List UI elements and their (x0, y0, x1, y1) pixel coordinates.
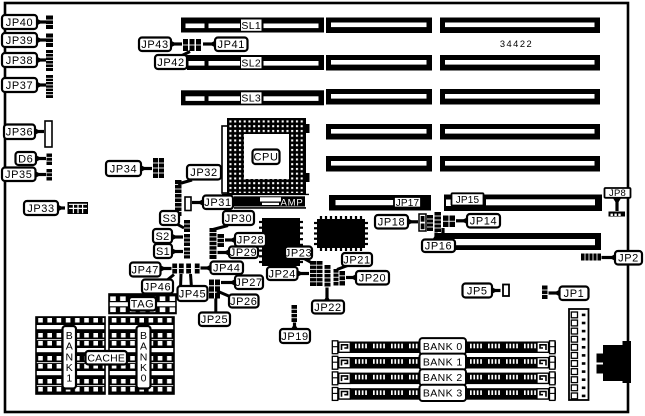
svg-text:JP8: JP8 (609, 188, 626, 199)
svg-text:JP44: JP44 (213, 263, 240, 275)
svg-text:JP26: JP26 (230, 296, 257, 308)
svg-text:SL2: SL2 (241, 57, 261, 69)
svg-text:JP14: JP14 (470, 216, 497, 228)
svg-text:JP19: JP19 (281, 331, 308, 343)
svg-text:S2: S2 (155, 231, 169, 243)
svg-text:TAG: TAG (131, 299, 155, 311)
svg-text:BANK 0: BANK 0 (423, 341, 463, 353)
svg-text:JP35: JP35 (5, 169, 32, 181)
svg-text:0: 0 (141, 373, 147, 385)
svg-text:JP36: JP36 (6, 127, 33, 139)
svg-text:JP31: JP31 (204, 197, 231, 209)
svg-text:BANK 3: BANK 3 (423, 388, 463, 400)
svg-text:CACHE: CACHE (87, 352, 125, 364)
svg-text:JP45: JP45 (179, 288, 206, 300)
svg-text:JP1: JP1 (564, 288, 585, 300)
svg-text:JP47: JP47 (132, 264, 159, 276)
svg-text:BANK 1: BANK 1 (423, 356, 463, 368)
svg-text:JP25: JP25 (201, 314, 228, 326)
svg-text:JP33: JP33 (27, 203, 54, 215)
svg-text:JP27: JP27 (235, 277, 262, 289)
svg-text:JP21: JP21 (343, 254, 370, 266)
svg-text:SL3: SL3 (241, 93, 261, 105)
svg-text:BANK 2: BANK 2 (423, 372, 463, 384)
svg-text:JP15: JP15 (456, 195, 480, 206)
svg-text:JP30: JP30 (225, 213, 252, 225)
svg-text:JP39: JP39 (6, 35, 33, 47)
svg-text:JP16: JP16 (425, 241, 452, 253)
svg-text:JP22: JP22 (314, 302, 341, 314)
svg-text:JP28: JP28 (237, 235, 264, 247)
svg-text:34422: 34422 (500, 39, 533, 49)
svg-text:CPU: CPU (253, 152, 278, 164)
svg-text:JP29: JP29 (230, 247, 257, 259)
svg-text:JP23: JP23 (285, 248, 312, 260)
svg-text:JP5: JP5 (467, 285, 488, 297)
svg-text:JP46: JP46 (144, 281, 171, 293)
svg-text:JP41: JP41 (218, 39, 245, 51)
svg-text:JP18: JP18 (378, 217, 405, 229)
svg-text:JP42: JP42 (157, 57, 184, 69)
svg-text:JP43: JP43 (141, 39, 168, 51)
svg-text:JP20: JP20 (359, 273, 386, 285)
svg-text:JP38: JP38 (6, 55, 33, 67)
svg-text:JP34: JP34 (110, 163, 137, 175)
svg-text:JP2: JP2 (618, 253, 639, 265)
svg-text:SL1: SL1 (241, 20, 261, 32)
svg-text:D6: D6 (18, 153, 33, 165)
svg-text:JP24: JP24 (269, 268, 296, 280)
svg-text:JP17: JP17 (396, 198, 420, 209)
svg-text:AMP: AMP (281, 197, 304, 208)
svg-text:JP40: JP40 (6, 17, 33, 29)
svg-text:1: 1 (66, 373, 72, 385)
svg-text:JP32: JP32 (190, 167, 217, 179)
svg-text:S3: S3 (162, 213, 176, 225)
svg-text:S1: S1 (156, 246, 170, 258)
svg-text:JP37: JP37 (6, 80, 33, 92)
